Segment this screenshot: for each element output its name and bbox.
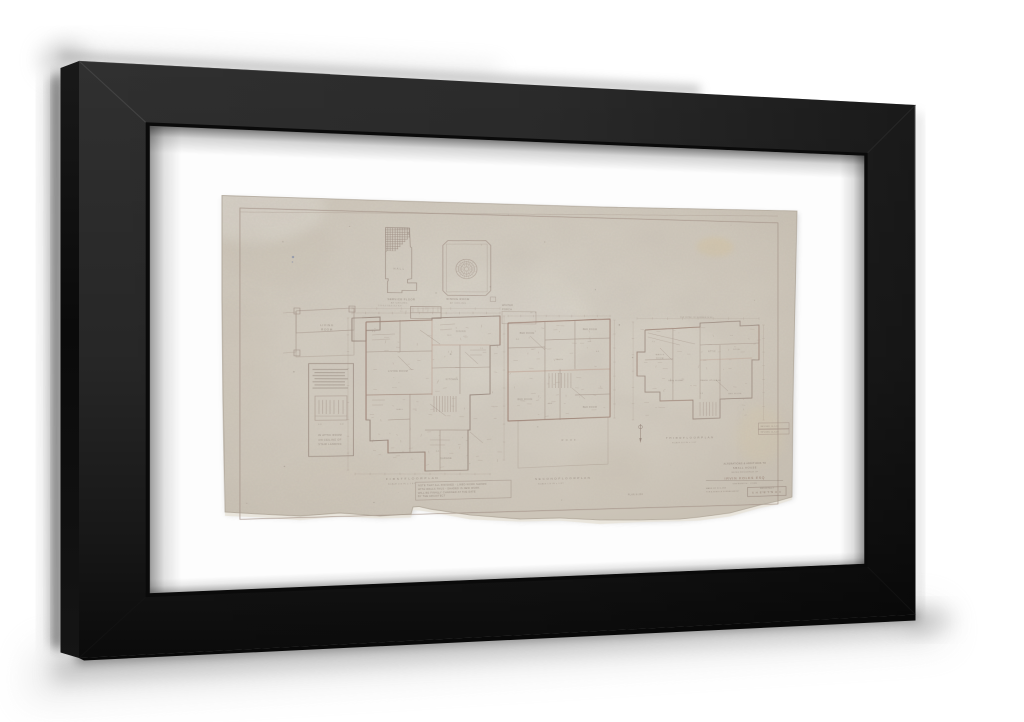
svg-text:BED ROOM: BED ROOM (583, 406, 597, 409)
svg-text:BY THE ARCHITECT: BY THE ARCHITECT (418, 494, 446, 498)
svg-text:DINING ROOM: DINING ROOM (446, 297, 469, 301)
svg-text:TRUNK STORAGE: TRUNK STORAGE (700, 379, 721, 382)
svg-text:SMALL HOUSE: SMALL HOUSE (733, 466, 757, 470)
svg-text:R O O F: R O O F (562, 438, 577, 442)
svg-text:12-4: 12-4 (392, 387, 397, 389)
svg-text:SCALE 1/4 IN = 1 FT: SCALE 1/4 IN = 1 FT (672, 441, 697, 444)
svg-text:HALL: HALL (397, 408, 404, 411)
svg-text:TANK ROOM: TANK ROOM (668, 379, 683, 382)
svg-text:WINTER: WINTER (502, 303, 513, 306)
svg-text:PORCH: PORCH (502, 307, 512, 310)
svg-text:9-9: 9-9 (700, 393, 704, 395)
svg-text:BED ROOM: BED ROOM (520, 332, 535, 335)
svg-text:8-2: 8-2 (516, 339, 520, 341)
svg-text:ROOM: ROOM (656, 357, 664, 359)
svg-text:IN ATTIC ROOM: IN ATTIC ROOM (318, 433, 342, 437)
svg-text:LIVING: LIVING (320, 323, 334, 327)
svg-text:BATH: BATH (557, 358, 564, 361)
svg-text:7-1: 7-1 (480, 348, 484, 350)
svg-text:SEE DETAIL OF DORMER IN X: SEE DETAIL OF DORMER IN XX (680, 316, 713, 319)
svg-text:STOR.: STOR. (733, 348, 740, 350)
svg-text:AT CEILING: AT CEILING (450, 302, 466, 305)
svg-text:ARCHITECT: ARCHITECT (760, 487, 774, 490)
svg-text:1/2: 1/2 (318, 423, 322, 426)
svg-text:7-2: 7-2 (652, 341, 656, 343)
svg-text:10-2: 10-2 (447, 335, 452, 337)
svg-text:31 - 4: 31 - 4 (400, 311, 407, 313)
svg-text:LIVING ROOM: LIVING ROOM (388, 369, 408, 372)
svg-text:BED ROOM: BED ROOM (518, 398, 533, 401)
svg-text:REVISED 12-9-28: REVISED 12-9-28 (761, 431, 779, 433)
svg-text:KITCHEN: KITCHEN (446, 378, 458, 381)
svg-text:1/2: 1/2 (340, 423, 344, 426)
svg-text:MAID'S: MAID'S (656, 353, 665, 355)
svg-text:24 - 6: 24 - 6 (530, 312, 537, 314)
svg-text:9-3: 9-3 (436, 451, 440, 453)
svg-text:ON CEILING OF: ON CEILING OF (318, 438, 341, 442)
svg-text:2-9 6-1 14-6 3-2 9: 2-9 6-1 14-6 3-2 9-8 (378, 305, 402, 307)
svg-text:DINING: DINING (456, 330, 466, 333)
svg-text:ROOM: ROOM (321, 328, 333, 332)
svg-text:MADE BY R.S.JKB: MADE BY R.S.JKB (706, 487, 726, 490)
svg-text:11-0: 11-0 (548, 403, 553, 405)
svg-text:BED ROOM: BED ROOM (728, 392, 741, 394)
svg-text:5-5: 5-5 (730, 335, 734, 337)
svg-text:AT CEILING: AT CEILING (391, 302, 408, 305)
svg-text:5-9: 5-9 (452, 398, 456, 400)
svg-text:SERVICE FLOOR: SERVICE FLOOR (387, 297, 415, 301)
svg-text:H A L L: H A L L (394, 267, 405, 271)
svg-text:4-6: 4-6 (372, 331, 376, 333)
svg-text:ATTIC: ATTIC (708, 350, 716, 352)
svg-text:PLAN N-292: PLAN N-292 (628, 493, 643, 496)
svg-text:BED ROOM: BED ROOM (583, 328, 597, 331)
svg-text:GARAGE: GARAGE (440, 457, 452, 460)
svg-text:REVISED 10-3-28: REVISED 10-3-28 (761, 426, 779, 428)
svg-text:STAIR LANDING: STAIR LANDING (318, 442, 342, 446)
svg-text:6-8: 6-8 (596, 351, 600, 353)
